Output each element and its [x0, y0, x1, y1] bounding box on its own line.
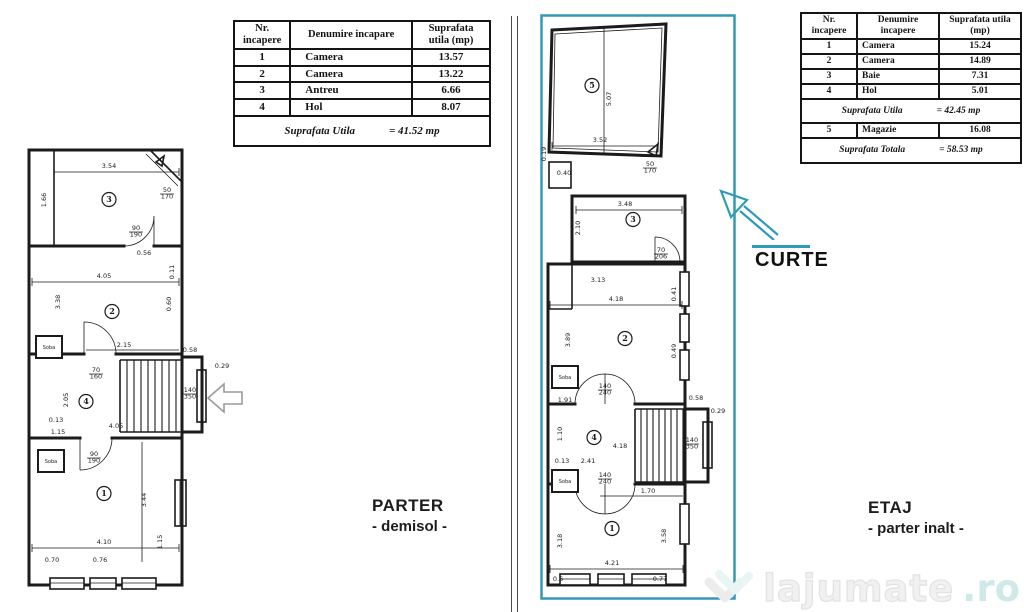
page-divider-line: [511, 16, 518, 612]
cell: 15.24: [939, 39, 1021, 54]
svg-text:1.15: 1.15: [51, 428, 65, 436]
cell: 13.57: [412, 49, 490, 66]
cell: 13.22: [412, 66, 490, 83]
svg-text:3.89: 3.89: [564, 333, 572, 347]
cell: 14.89: [939, 54, 1021, 69]
dimension-label: 3.13: [591, 276, 605, 284]
dimension-label: 0.60: [165, 297, 173, 311]
room-row: 5Magazie16.08: [801, 123, 1021, 138]
svg-text:1.70: 1.70: [641, 487, 655, 495]
svg-text:0.6: 0.6: [553, 575, 563, 583]
svg-text:4.18: 4.18: [609, 295, 623, 303]
svg-text:0.41: 0.41: [670, 287, 678, 301]
room-number: 1: [605, 522, 619, 536]
svg-text:3.48: 3.48: [618, 200, 632, 208]
dimension-label: 70160: [89, 366, 103, 381]
dimension-label: 0.40: [557, 169, 571, 177]
cell: Camera: [857, 39, 939, 54]
svg-text:1.66: 1.66: [40, 193, 48, 207]
svg-text:50170: 50170: [644, 160, 656, 175]
dimension-label: 2.05: [62, 393, 70, 407]
svg-text:4.10: 4.10: [97, 538, 111, 546]
dimension-label: 1.15: [51, 428, 65, 436]
total-row: Suprafata Utila= 42.45 mp: [801, 99, 1021, 124]
dimension-label: 3.38: [54, 295, 62, 309]
svg-text:5.07: 5.07: [605, 92, 613, 106]
cell: 2: [234, 66, 290, 83]
room-row: 1Camera13.57: [234, 49, 490, 66]
dimension-label: 1.66: [40, 193, 48, 207]
dimension-label: 0.6: [553, 575, 563, 583]
cell: 7.31: [939, 69, 1021, 84]
svg-text:4.05: 4.05: [109, 422, 123, 430]
cell: 6.66: [412, 82, 490, 99]
svg-text:50170: 50170: [161, 186, 173, 201]
room-number: 3: [626, 213, 640, 227]
svg-text:2: 2: [109, 306, 115, 316]
dimension-label: 3.58: [660, 529, 668, 543]
dimension-label: 5.07: [605, 92, 613, 106]
svg-text:0.60: 0.60: [165, 297, 173, 311]
dimension-label: 4.18: [613, 442, 627, 450]
dimension-label: 4.05: [109, 422, 123, 430]
svg-text:3.13: 3.13: [591, 276, 605, 284]
curte-label: CURTE: [755, 249, 829, 272]
svg-text:0.58: 0.58: [689, 394, 703, 402]
cell: 5: [801, 123, 857, 138]
cell: 16.08: [939, 123, 1021, 138]
svg-text:0.76: 0.76: [93, 556, 107, 564]
watermark: lajumate.ro: [703, 566, 1020, 610]
column-header: Denumire incapare: [290, 21, 412, 49]
svg-text:140240: 140240: [599, 382, 611, 397]
dimension-label: 2.10: [574, 221, 582, 235]
dimension-label: 3.48: [618, 200, 632, 208]
dimension-label: 140240: [598, 471, 612, 486]
dimension-label: 0.11: [168, 265, 176, 279]
svg-text:0.58: 0.58: [183, 346, 197, 354]
dimension-label: 1.15: [156, 535, 164, 549]
room-number: 2: [105, 305, 119, 319]
svg-text:0.70: 0.70: [45, 556, 59, 564]
dimension-label: 3.44: [140, 493, 148, 507]
svg-text:0.13: 0.13: [49, 416, 63, 424]
room-row: 4Hol8.07: [234, 99, 490, 116]
cell: Baie: [857, 69, 939, 84]
svg-text:0.40: 0.40: [557, 169, 571, 177]
dimension-label: 1.10: [556, 427, 564, 441]
column-header: Nr. incapere: [801, 13, 857, 39]
svg-text:4.05: 4.05: [97, 272, 111, 280]
cell: 1: [801, 39, 857, 54]
room-row: 2Camera14.89: [801, 54, 1021, 69]
cell: Camera: [290, 49, 412, 66]
svg-text:1.91: 1.91: [558, 396, 572, 404]
dimension-label: 3.89: [564, 333, 572, 347]
dimension-label: 4.10: [97, 538, 111, 546]
room-number: 5: [585, 79, 599, 93]
dimension-label: 140350: [183, 386, 197, 401]
dimension-label: 0.58: [183, 346, 197, 354]
etaj-walls: [548, 24, 712, 585]
cell: Hol: [857, 84, 939, 99]
svg-text:2.10: 2.10: [574, 221, 582, 235]
dimension-label: 0.29: [215, 362, 229, 370]
svg-text:90190: 90190: [130, 224, 142, 239]
dimension-label: 0.56: [137, 249, 151, 257]
dimension-label: 2.41: [581, 457, 595, 465]
room-row: 3Antreu6.66: [234, 82, 490, 99]
etaj-subtitle: - parter inalt -: [868, 520, 964, 537]
svg-text:Soba: Soba: [559, 479, 571, 485]
dimension-label: 90190: [129, 224, 143, 239]
svg-text:0.29: 0.29: [215, 362, 229, 370]
svg-text:2: 2: [622, 333, 628, 343]
parter-caption: PARTER - demisol -: [372, 496, 447, 535]
svg-text:0.13: 0.13: [555, 457, 569, 465]
highlight-frame: [542, 16, 735, 599]
svg-text:4.18: 4.18: [613, 442, 627, 450]
dimension-label: 0.13: [555, 457, 569, 465]
dimension-label: 50170: [643, 160, 657, 175]
dimension-label: 3.18: [556, 534, 564, 548]
stove-box: Soba: [552, 366, 578, 388]
cell: 8.07: [412, 99, 490, 116]
dimension-label: 1.91: [558, 396, 572, 404]
dimension-label: 0.77: [653, 575, 667, 583]
svg-text:3: 3: [630, 214, 636, 224]
svg-text:1.15: 1.15: [156, 535, 164, 549]
room-number: 1: [97, 487, 111, 501]
svg-text:2.05: 2.05: [62, 393, 70, 407]
cell: 4: [234, 99, 290, 116]
dimension-label: 0.70: [45, 556, 59, 564]
etaj-area-table: Nr. incapereDenumire incapereSuprafata u…: [800, 12, 1022, 164]
dimension-label: 0.13: [49, 416, 63, 424]
stove-box: Soba: [552, 470, 578, 492]
svg-text:3.18: 3.18: [556, 534, 564, 548]
room-row: 2Camera13.22: [234, 66, 490, 83]
cell: Camera: [857, 54, 939, 69]
svg-text:3.52: 3.52: [593, 136, 607, 144]
cell: 1: [234, 49, 290, 66]
total-row: Suprafata Totala= 58.53 mp: [801, 138, 1021, 163]
svg-text:0.56: 0.56: [137, 249, 151, 257]
svg-text:1: 1: [101, 488, 107, 498]
dimension-label: 4.18: [609, 295, 623, 303]
dimension-label: 70206: [654, 246, 668, 261]
svg-text:3: 3: [106, 194, 112, 204]
svg-text:Soba: Soba: [43, 345, 55, 351]
dimension-label: 4.21: [605, 559, 619, 567]
svg-text:0.19: 0.19: [540, 147, 548, 161]
column-header: Denumire incapere: [857, 13, 939, 39]
dimension-label: 3.54: [102, 162, 116, 170]
dimension-label: 90190: [87, 450, 101, 465]
svg-text:0.77: 0.77: [653, 575, 667, 583]
svg-text:4.21: 4.21: [605, 559, 619, 567]
dimension-label: 0.29: [711, 407, 725, 415]
svg-text:1: 1: [609, 523, 615, 533]
svg-text:70206: 70206: [655, 246, 667, 261]
cell: 2: [801, 54, 857, 69]
column-header: Suprafata utila (mp): [939, 13, 1021, 39]
svg-text:3.38: 3.38: [54, 295, 62, 309]
dimension-label: 2.15: [117, 341, 131, 349]
svg-text:5: 5: [589, 80, 595, 90]
etaj-caption: ETAJ - parter inalt -: [868, 498, 964, 537]
column-header: Nr. incapere: [234, 21, 290, 49]
stove-box: Soba: [38, 450, 64, 472]
dimension-label: 0.76: [93, 556, 107, 564]
cell: Hol: [290, 99, 412, 116]
parter-area-table: Nr. incapereDenumire incapareSuprafata u…: [233, 20, 491, 147]
dimension-label: 0.58: [689, 394, 703, 402]
dimension-label: 140350: [685, 436, 699, 451]
table-header-row: Nr. incapereDenumire incapereSuprafata u…: [801, 13, 1021, 39]
room-number: 2: [618, 332, 632, 346]
cell: 4: [801, 84, 857, 99]
svg-text:Soba: Soba: [45, 459, 57, 465]
dimension-label: 0.41: [670, 287, 678, 301]
dimension-label: 4.05: [97, 272, 111, 280]
parter-walls: [29, 150, 206, 589]
etaj-title: ETAJ: [868, 498, 964, 518]
svg-text:3.58: 3.58: [660, 529, 668, 543]
svg-text:2.15: 2.15: [117, 341, 131, 349]
dimension-label: 0.19: [540, 147, 548, 161]
svg-text:140350: 140350: [686, 436, 698, 451]
room-number: 4: [587, 431, 601, 445]
lajumate-logo-icon: [703, 566, 755, 610]
svg-text:4: 4: [83, 396, 89, 406]
cell: 3: [801, 69, 857, 84]
curte-underline: [752, 245, 810, 248]
room-row: 1Camera15.24: [801, 39, 1021, 54]
svg-text:1.10: 1.10: [556, 427, 564, 441]
cell: 3: [234, 82, 290, 99]
svg-text:Soba: Soba: [559, 375, 571, 381]
total-row: Suprafata Utila= 41.52 mp: [234, 116, 490, 147]
svg-text:0.29: 0.29: [711, 407, 725, 415]
cell: Magazie: [857, 123, 939, 138]
dimension-label: 1.70: [641, 487, 655, 495]
svg-text:90190: 90190: [88, 450, 100, 465]
svg-text:2.41: 2.41: [581, 457, 595, 465]
room-number: 3: [102, 193, 116, 207]
svg-text:0.49: 0.49: [670, 344, 678, 358]
floorplan-scan-page: Nr. incapereDenumire incapareSuprafata u…: [0, 0, 1024, 612]
svg-text:4: 4: [591, 432, 597, 442]
watermark-tld: .ro: [962, 567, 1020, 610]
svg-text:70160: 70160: [90, 366, 102, 381]
dimension-label: 0.49: [670, 344, 678, 358]
entrance-arrow-icon: [208, 384, 242, 412]
dimension-label: 3.52: [593, 136, 607, 144]
svg-text:3.44: 3.44: [140, 493, 148, 507]
stove-box: Soba: [36, 336, 62, 358]
dimension-label: 140240: [598, 382, 612, 397]
svg-text:140240: 140240: [599, 471, 611, 486]
cell: 5.01: [939, 84, 1021, 99]
cell: Antreu: [290, 82, 412, 99]
room-row: 3Baie7.31: [801, 69, 1021, 84]
room-row: 4Hol5.01: [801, 84, 1021, 99]
cell: Camera: [290, 66, 412, 83]
svg-text:140350: 140350: [184, 386, 196, 401]
parter-floorplan-drawing: 3.541.66350170901900.564.050.113.380.602…: [24, 142, 246, 594]
curte-arrow-icon: [700, 180, 830, 240]
column-header: Suprafata utila (mp): [412, 21, 490, 49]
room-number: 4: [79, 395, 93, 409]
svg-text:0.11: 0.11: [168, 265, 176, 279]
table-header-row: Nr. incapereDenumire incapareSuprafata u…: [234, 21, 490, 49]
watermark-brand: lajumate: [763, 567, 954, 610]
dimension-label: 50170: [160, 186, 174, 201]
parter-subtitle: - demisol -: [372, 518, 447, 535]
parter-title: PARTER: [372, 496, 447, 516]
etaj-floorplan-drawing: 55.073.520.190.40501703.482.103702063.13…: [540, 14, 736, 600]
svg-text:3.54: 3.54: [102, 162, 116, 170]
